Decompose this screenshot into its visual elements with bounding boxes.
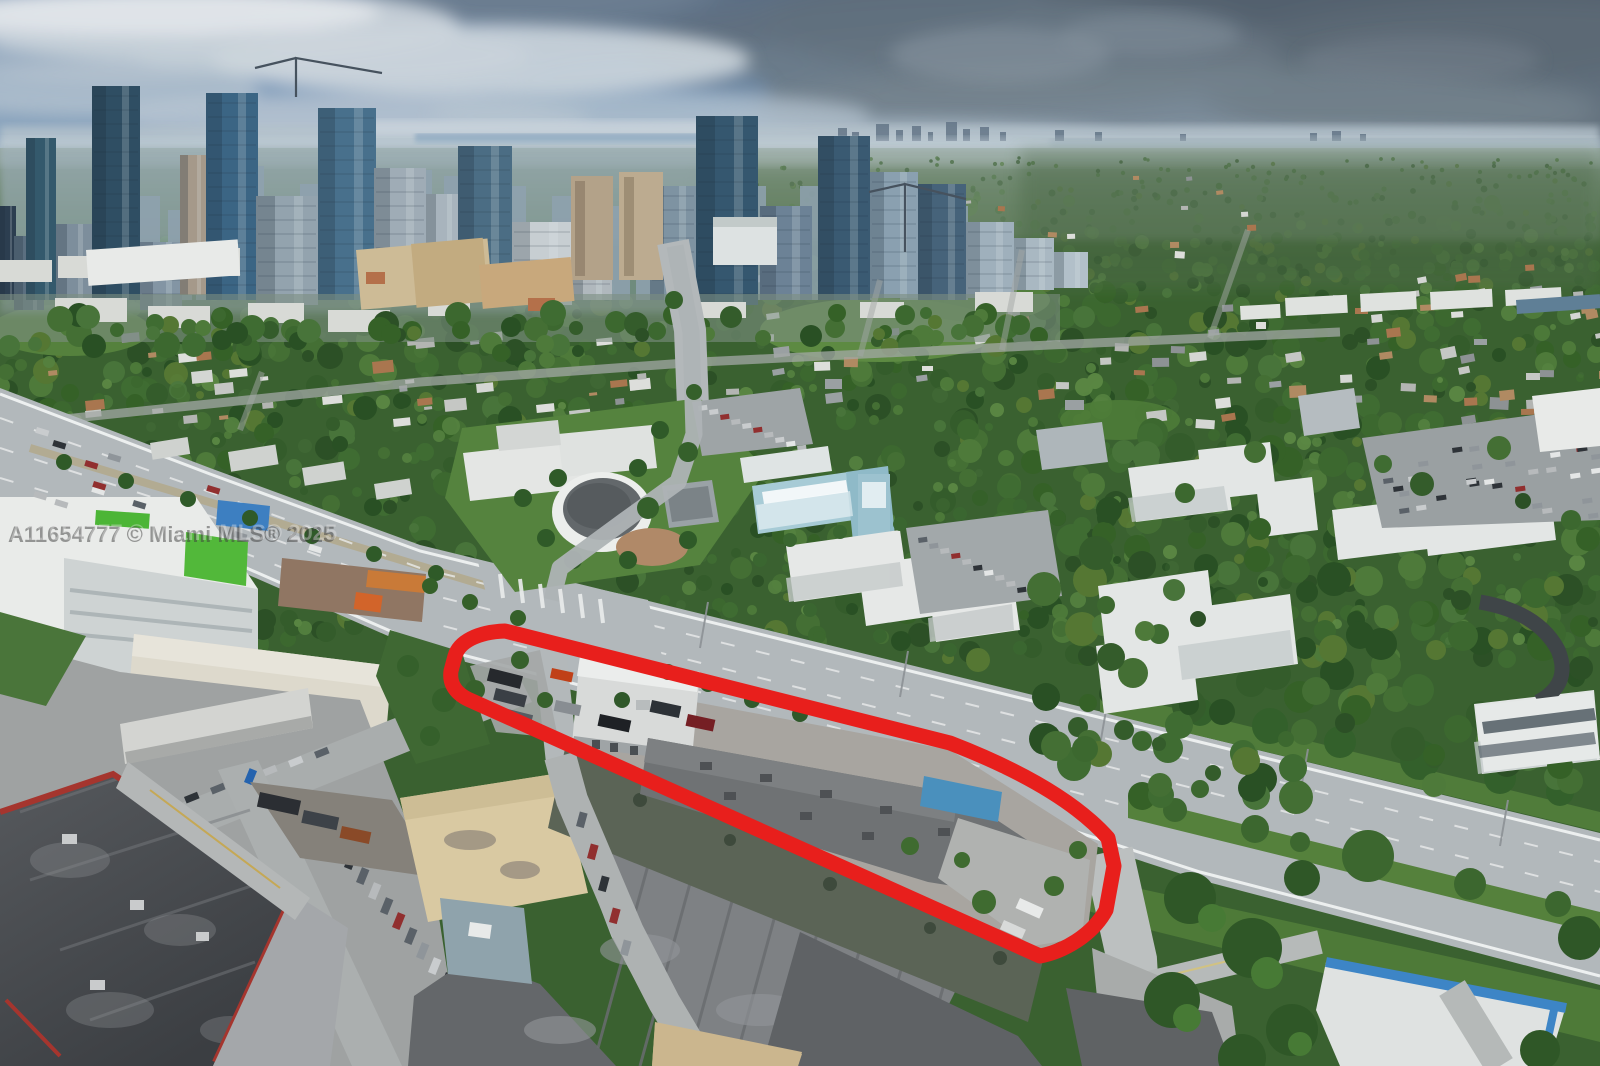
svg-text:A11654777 © Miami MLS® 2025: A11654777 © Miami MLS® 2025	[10, 520, 337, 545]
